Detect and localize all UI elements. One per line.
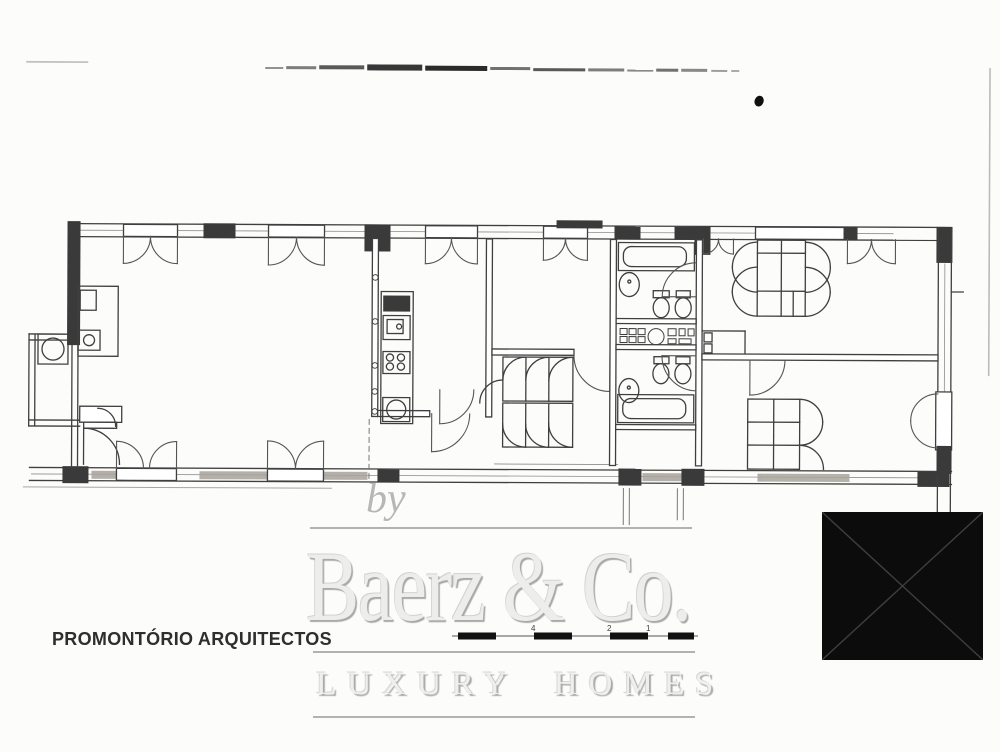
- ink-spot: [753, 94, 765, 107]
- door-swing-arc: [440, 390, 474, 424]
- utility-shaft: [620, 329, 694, 345]
- watermark-by-label: by: [366, 478, 406, 520]
- washbasin: [619, 273, 639, 297]
- architect-credit: PROMONTÓRIO ARQUITECTOS: [52, 629, 332, 650]
- door-lintel: [755, 227, 847, 239]
- blacked-out-logo-square: [822, 512, 983, 660]
- scan-edge-line: [988, 68, 991, 376]
- scanned-floor-plan-page: by Baerz & Co. 4 2 1 LUXURY HOMES PROMON…: [0, 0, 1000, 750]
- door-swing-arc: [83, 428, 119, 464]
- counter-with-sink: [78, 286, 118, 356]
- watermark-rule-top: [310, 527, 692, 529]
- stove: [383, 351, 410, 373]
- bidet: [675, 357, 691, 384]
- living-room-doors: [116, 236, 324, 469]
- washing-machine: [38, 334, 68, 364]
- refrigerator: [383, 295, 410, 311]
- right-exterior-wall: [935, 229, 963, 514]
- door-lintel: [267, 469, 323, 481]
- wardrobe: [747, 399, 823, 469]
- scale-tick-label: 4: [531, 624, 535, 633]
- bathtub: [618, 243, 694, 271]
- door-swing-arc: [750, 360, 785, 395]
- window-swing-arc: [911, 421, 938, 448]
- bottom-exterior-wall: [23, 466, 951, 491]
- door-swing-arc: [662, 263, 696, 297]
- wardrobe: [503, 357, 573, 401]
- bidet: [675, 291, 691, 318]
- graphic-scale-bar: 4 2 1: [452, 626, 698, 642]
- watermark-tagline: LUXURY HOMES: [316, 668, 724, 701]
- scan-artifacts: [25, 61, 991, 376]
- kitchen: [369, 237, 493, 482]
- top-exterior-wall: [67, 218, 953, 349]
- kitchen-sink: [383, 315, 410, 339]
- door-lintel: [425, 226, 477, 238]
- toilet: [653, 357, 669, 384]
- porch-steps: [623, 489, 683, 525]
- watermark-company-name: Baerz & Co.: [306, 537, 691, 637]
- bedroom-top-right: [702, 239, 939, 361]
- bathrooms: [609, 239, 745, 466]
- bathtub: [618, 395, 694, 423]
- door-lintel: [268, 225, 324, 237]
- watermark-rule-bottom: [313, 716, 695, 718]
- window-swing-arc: [911, 394, 938, 421]
- window-lintel: [936, 392, 952, 450]
- entry-vestibule: [79, 406, 121, 464]
- scale-tick-label: 1: [646, 624, 650, 633]
- toilet: [653, 291, 669, 318]
- scale-tick-label: 2: [607, 624, 611, 633]
- door-swing-arc: [574, 355, 610, 391]
- wardrobe: [732, 240, 830, 316]
- door-lintel: [123, 224, 177, 236]
- window-hatch: [91, 471, 849, 482]
- washing-machine: [383, 397, 410, 421]
- watermark-rule-middle: [313, 651, 695, 653]
- door-swing-arc: [432, 414, 470, 452]
- bedroom-bottom-right: [747, 360, 937, 470]
- door-lintel: [116, 468, 176, 480]
